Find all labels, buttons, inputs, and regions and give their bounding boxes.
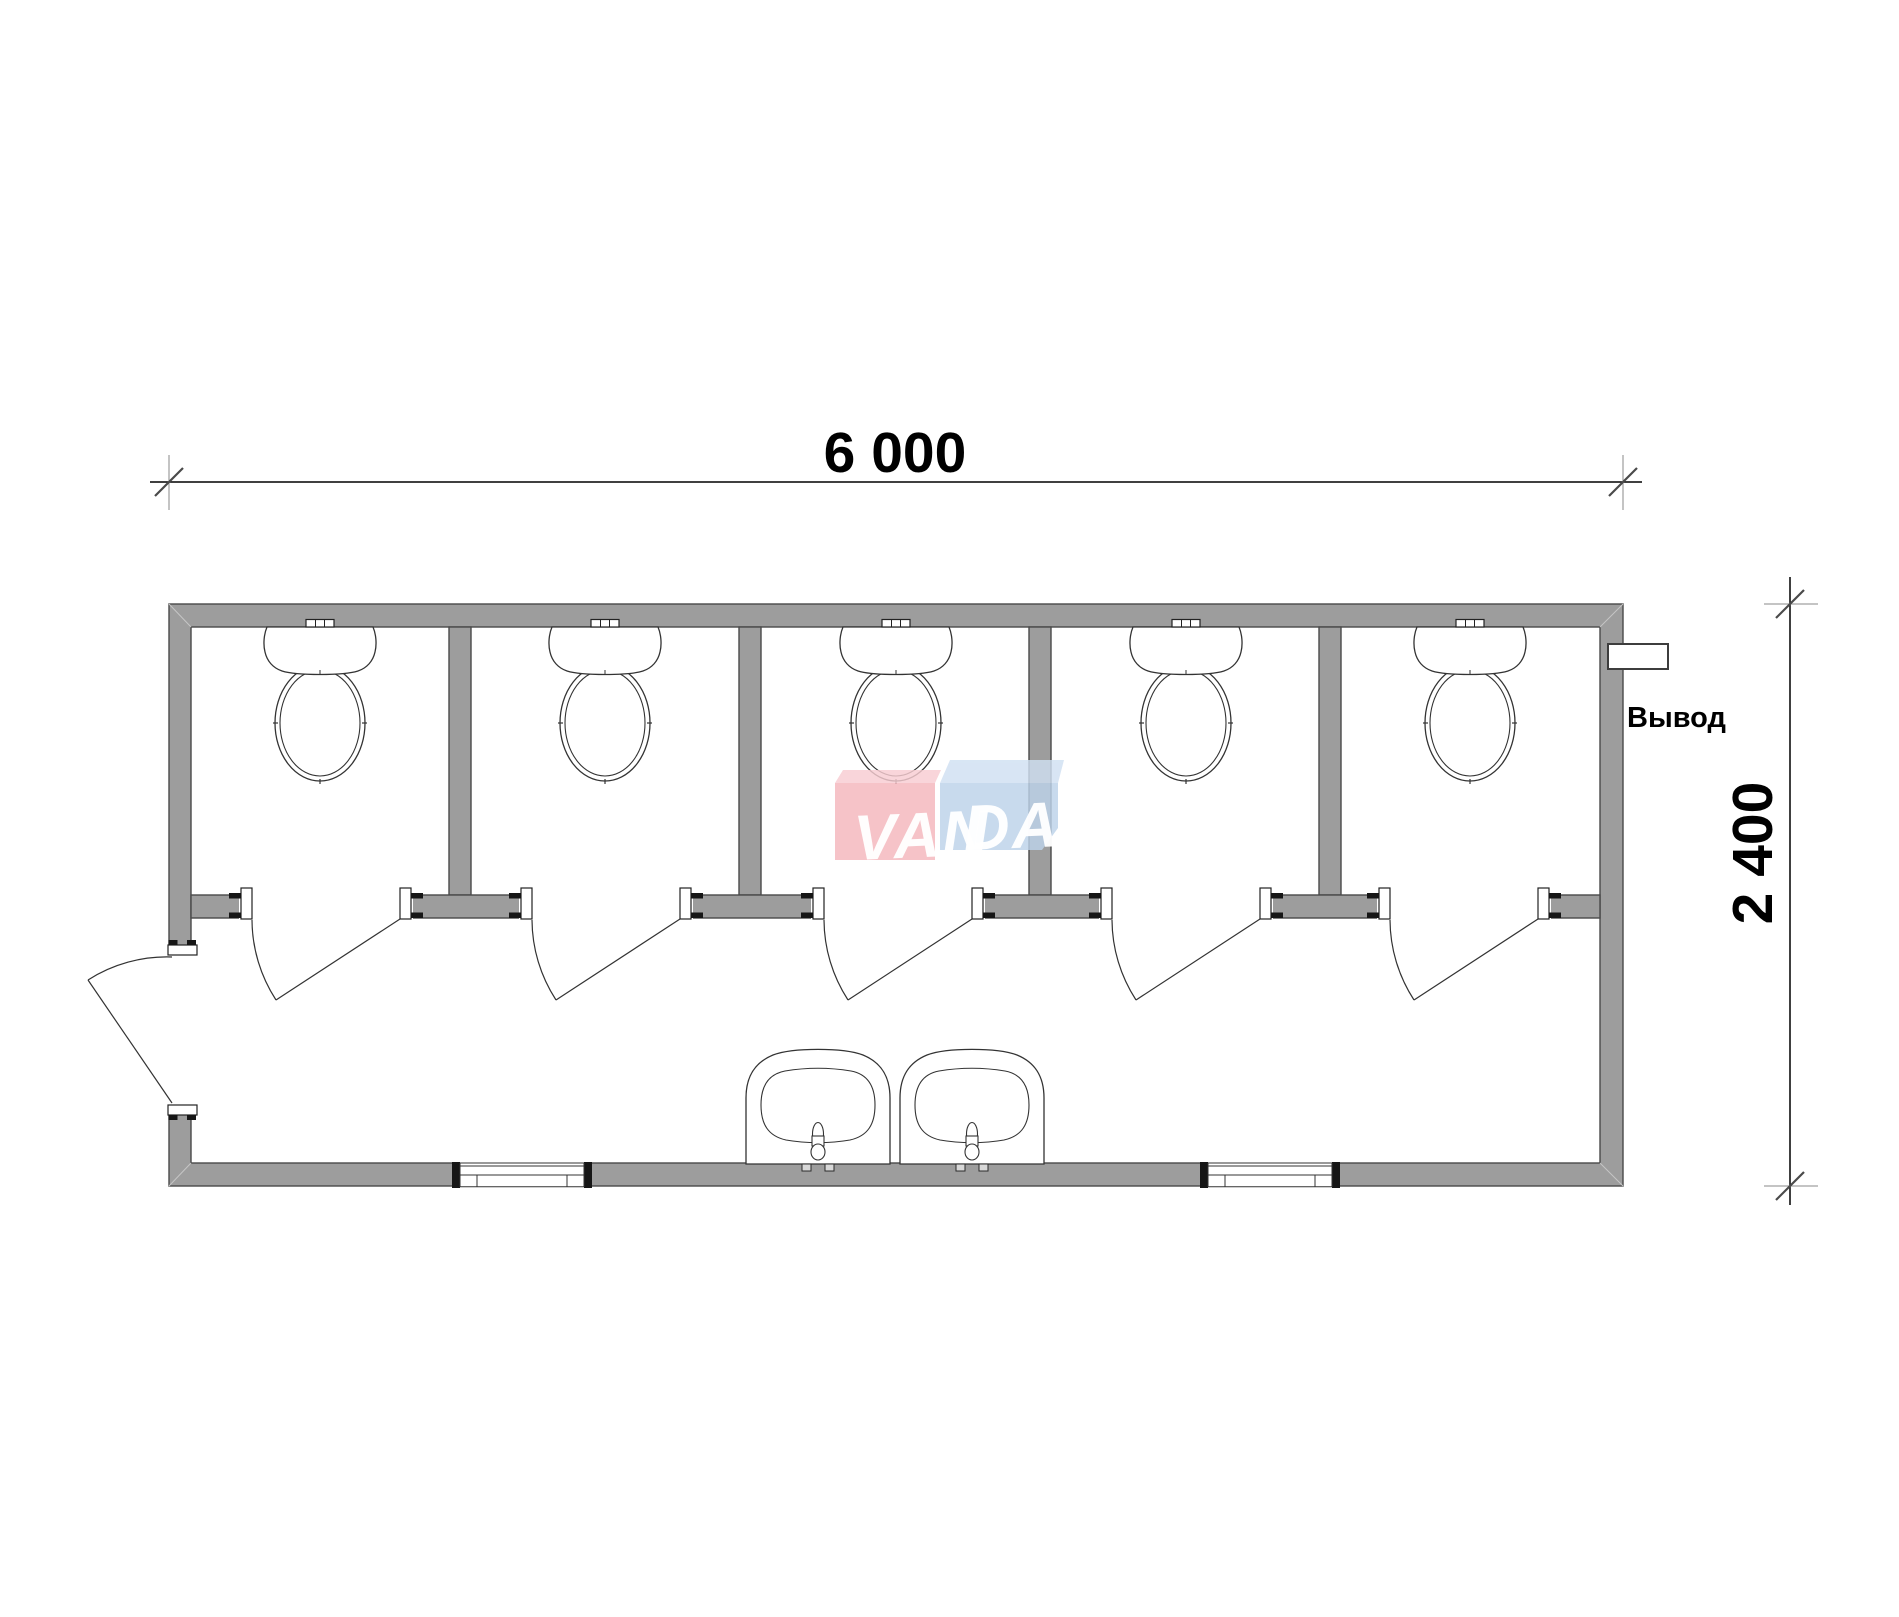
- watermark-pink-top: [835, 770, 941, 783]
- toilet-2: [549, 620, 661, 785]
- sink-2: [900, 1049, 1044, 1171]
- dimension-width: 6 000: [150, 421, 1642, 510]
- partition-wall: [1319, 627, 1341, 895]
- stall-door-1: [229, 887, 423, 1000]
- stall-door-2: [509, 887, 703, 1000]
- watermark-text: VAN DA: [852, 788, 1062, 874]
- watermark-text-da: DA: [962, 788, 1061, 864]
- stall-door-3: [801, 887, 995, 1000]
- window-2: [1200, 1162, 1340, 1189]
- stall-door-4: [1089, 887, 1283, 1000]
- partition-wall: [739, 627, 761, 895]
- utility-outlet: Вывод: [1608, 644, 1726, 734]
- floor-plan-page: 6 000 2 400: [0, 0, 1899, 1617]
- partition-wall: [449, 627, 471, 895]
- dimension-height: 2 400: [1721, 577, 1818, 1205]
- toilet-5: [1414, 620, 1526, 785]
- toilet-4: [1130, 620, 1242, 785]
- height-dimension-label: 2 400: [1721, 782, 1785, 925]
- entrance-door: [88, 940, 197, 1120]
- floor-plan-drawing: 6 000 2 400: [0, 0, 1899, 1617]
- watermark-blue-top: [940, 760, 1064, 783]
- toilet-1: [264, 620, 376, 785]
- toilet-3: [840, 620, 952, 785]
- window-1: [452, 1162, 592, 1189]
- width-dimension-label: 6 000: [824, 421, 967, 485]
- sink-1: [746, 1049, 890, 1171]
- stall-door-5: [1367, 887, 1561, 1000]
- outlet-label: Вывод: [1627, 702, 1726, 734]
